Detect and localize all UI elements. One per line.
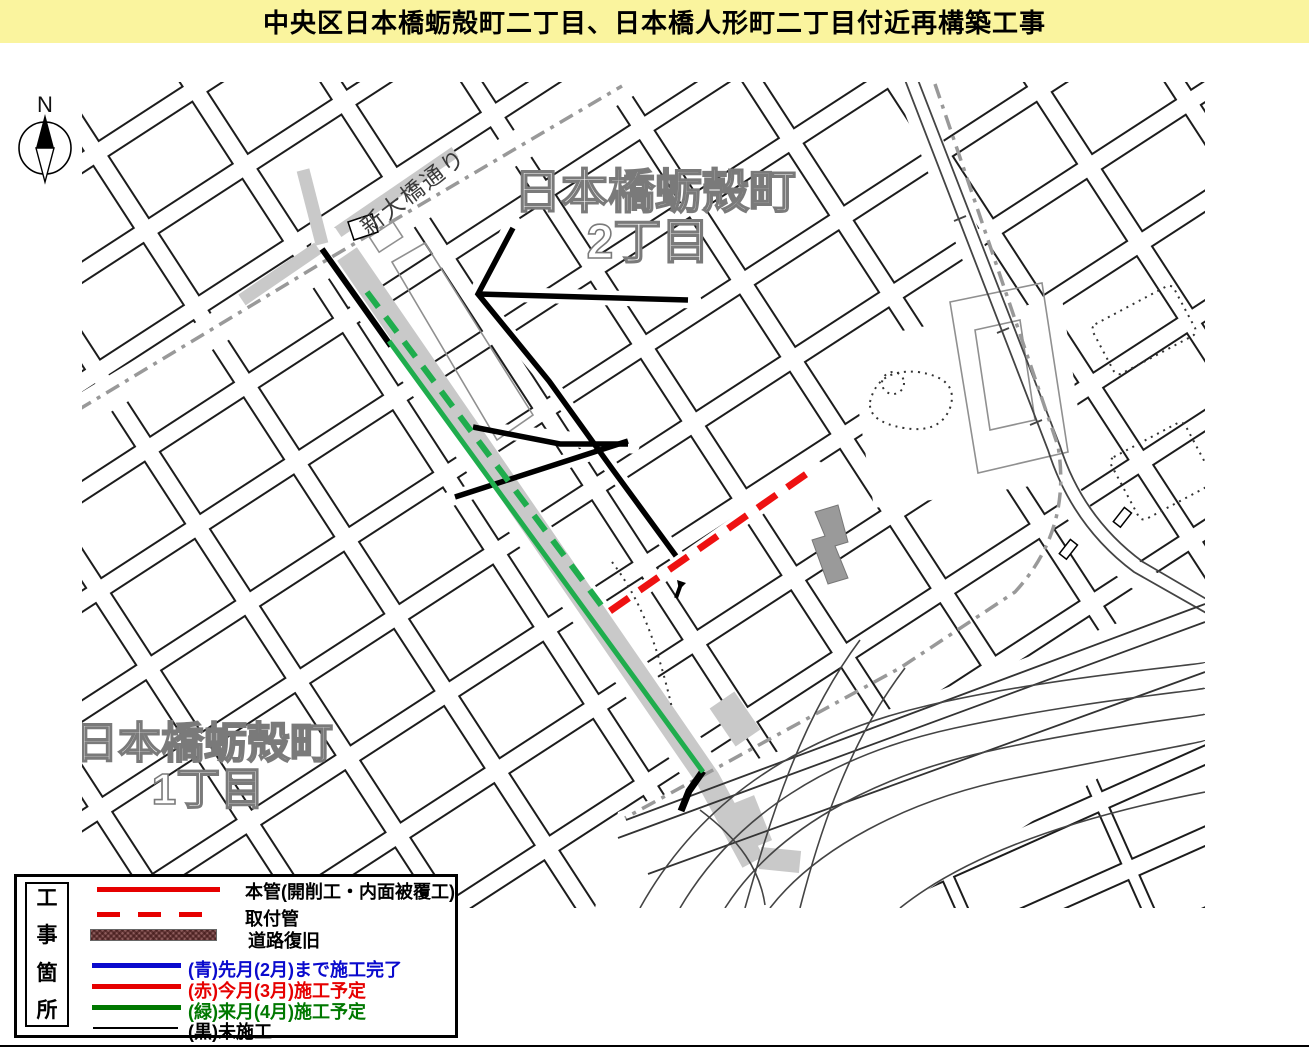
legend-vtitle-char: 工 xyxy=(37,888,58,909)
district-label-lower-line1: 日本橋蛎殻町 xyxy=(75,720,333,768)
compass-icon: N xyxy=(19,92,71,182)
district-label-upper-line1: 日本橋蛎殻町 xyxy=(514,165,796,218)
compass-north-label: N xyxy=(37,92,53,117)
legend-vertical-title: 工 事 箇 所 xyxy=(25,882,69,1027)
legend-vtitle-char: 所 xyxy=(37,1000,58,1021)
bottom-border-line xyxy=(0,1045,1309,1047)
legend-symbol-swatch-1 xyxy=(97,912,203,917)
legend-symbol-label-0: 本管(開削工・内面被覆工) xyxy=(245,878,455,904)
legend-symbol-swatch-0 xyxy=(97,887,220,892)
legend-vtitle-char: 箇 xyxy=(37,963,58,984)
legend-status-bar-2 xyxy=(92,1005,181,1010)
legend-box: 工 事 箇 所 本管(開削工・内面被覆工) 取付管 道路復旧 (青)先月(2月)… xyxy=(14,874,458,1038)
legend-symbol-label-2: 道路復旧 xyxy=(248,927,320,953)
map-area: 日本橋蛎殻町 2丁目 日本橋蛎殻町 1丁目 新大橋通り xyxy=(70,78,1216,908)
page: 中央区日本橋蛎殻町二丁目、日本橋人形町二丁目付近再構築工事 xyxy=(0,0,1309,1052)
legend-status-bar-1 xyxy=(92,984,181,989)
legend-status-bar-0 xyxy=(92,963,181,968)
legend-symbol-swatch-2 xyxy=(90,929,217,941)
district-label-lower-line2: 1丁目 xyxy=(152,765,264,814)
legend-vtitle-char: 事 xyxy=(37,925,58,946)
legend-status-label-3: (黒)未施工 xyxy=(188,1018,272,1044)
district-label-upper-line2: 2丁目 xyxy=(587,216,710,269)
legend-status-bar-3 xyxy=(93,1027,178,1029)
